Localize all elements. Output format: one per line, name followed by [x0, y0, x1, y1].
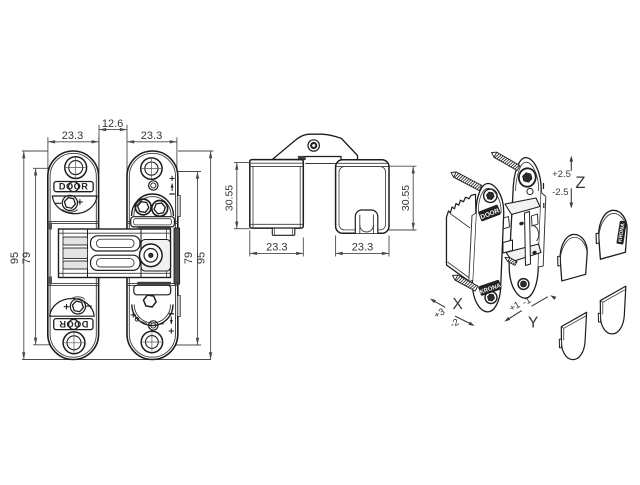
svg-text:DOOR: DOOR	[59, 182, 89, 192]
svg-text:23.3: 23.3	[141, 130, 162, 142]
svg-text:30.55: 30.55	[224, 185, 236, 211]
svg-text:95: 95	[9, 252, 21, 264]
svg-text:12.6: 12.6	[102, 118, 123, 130]
svg-text:Y: Y	[528, 315, 538, 332]
svg-text:X: X	[453, 296, 464, 313]
svg-text:95: 95	[196, 252, 208, 264]
svg-text:79: 79	[21, 252, 33, 264]
svg-text:23.3: 23.3	[352, 242, 373, 254]
svg-text:23.3: 23.3	[62, 130, 83, 142]
svg-text:30.55: 30.55	[400, 185, 412, 211]
svg-text:79: 79	[183, 252, 195, 264]
svg-text:-2.5: -2.5	[552, 187, 568, 198]
svg-text:Z: Z	[575, 174, 585, 192]
svg-text:+2.5: +2.5	[552, 169, 571, 180]
svg-text:DOOR: DOOR	[59, 319, 89, 329]
svg-text:23.3: 23.3	[266, 242, 287, 254]
